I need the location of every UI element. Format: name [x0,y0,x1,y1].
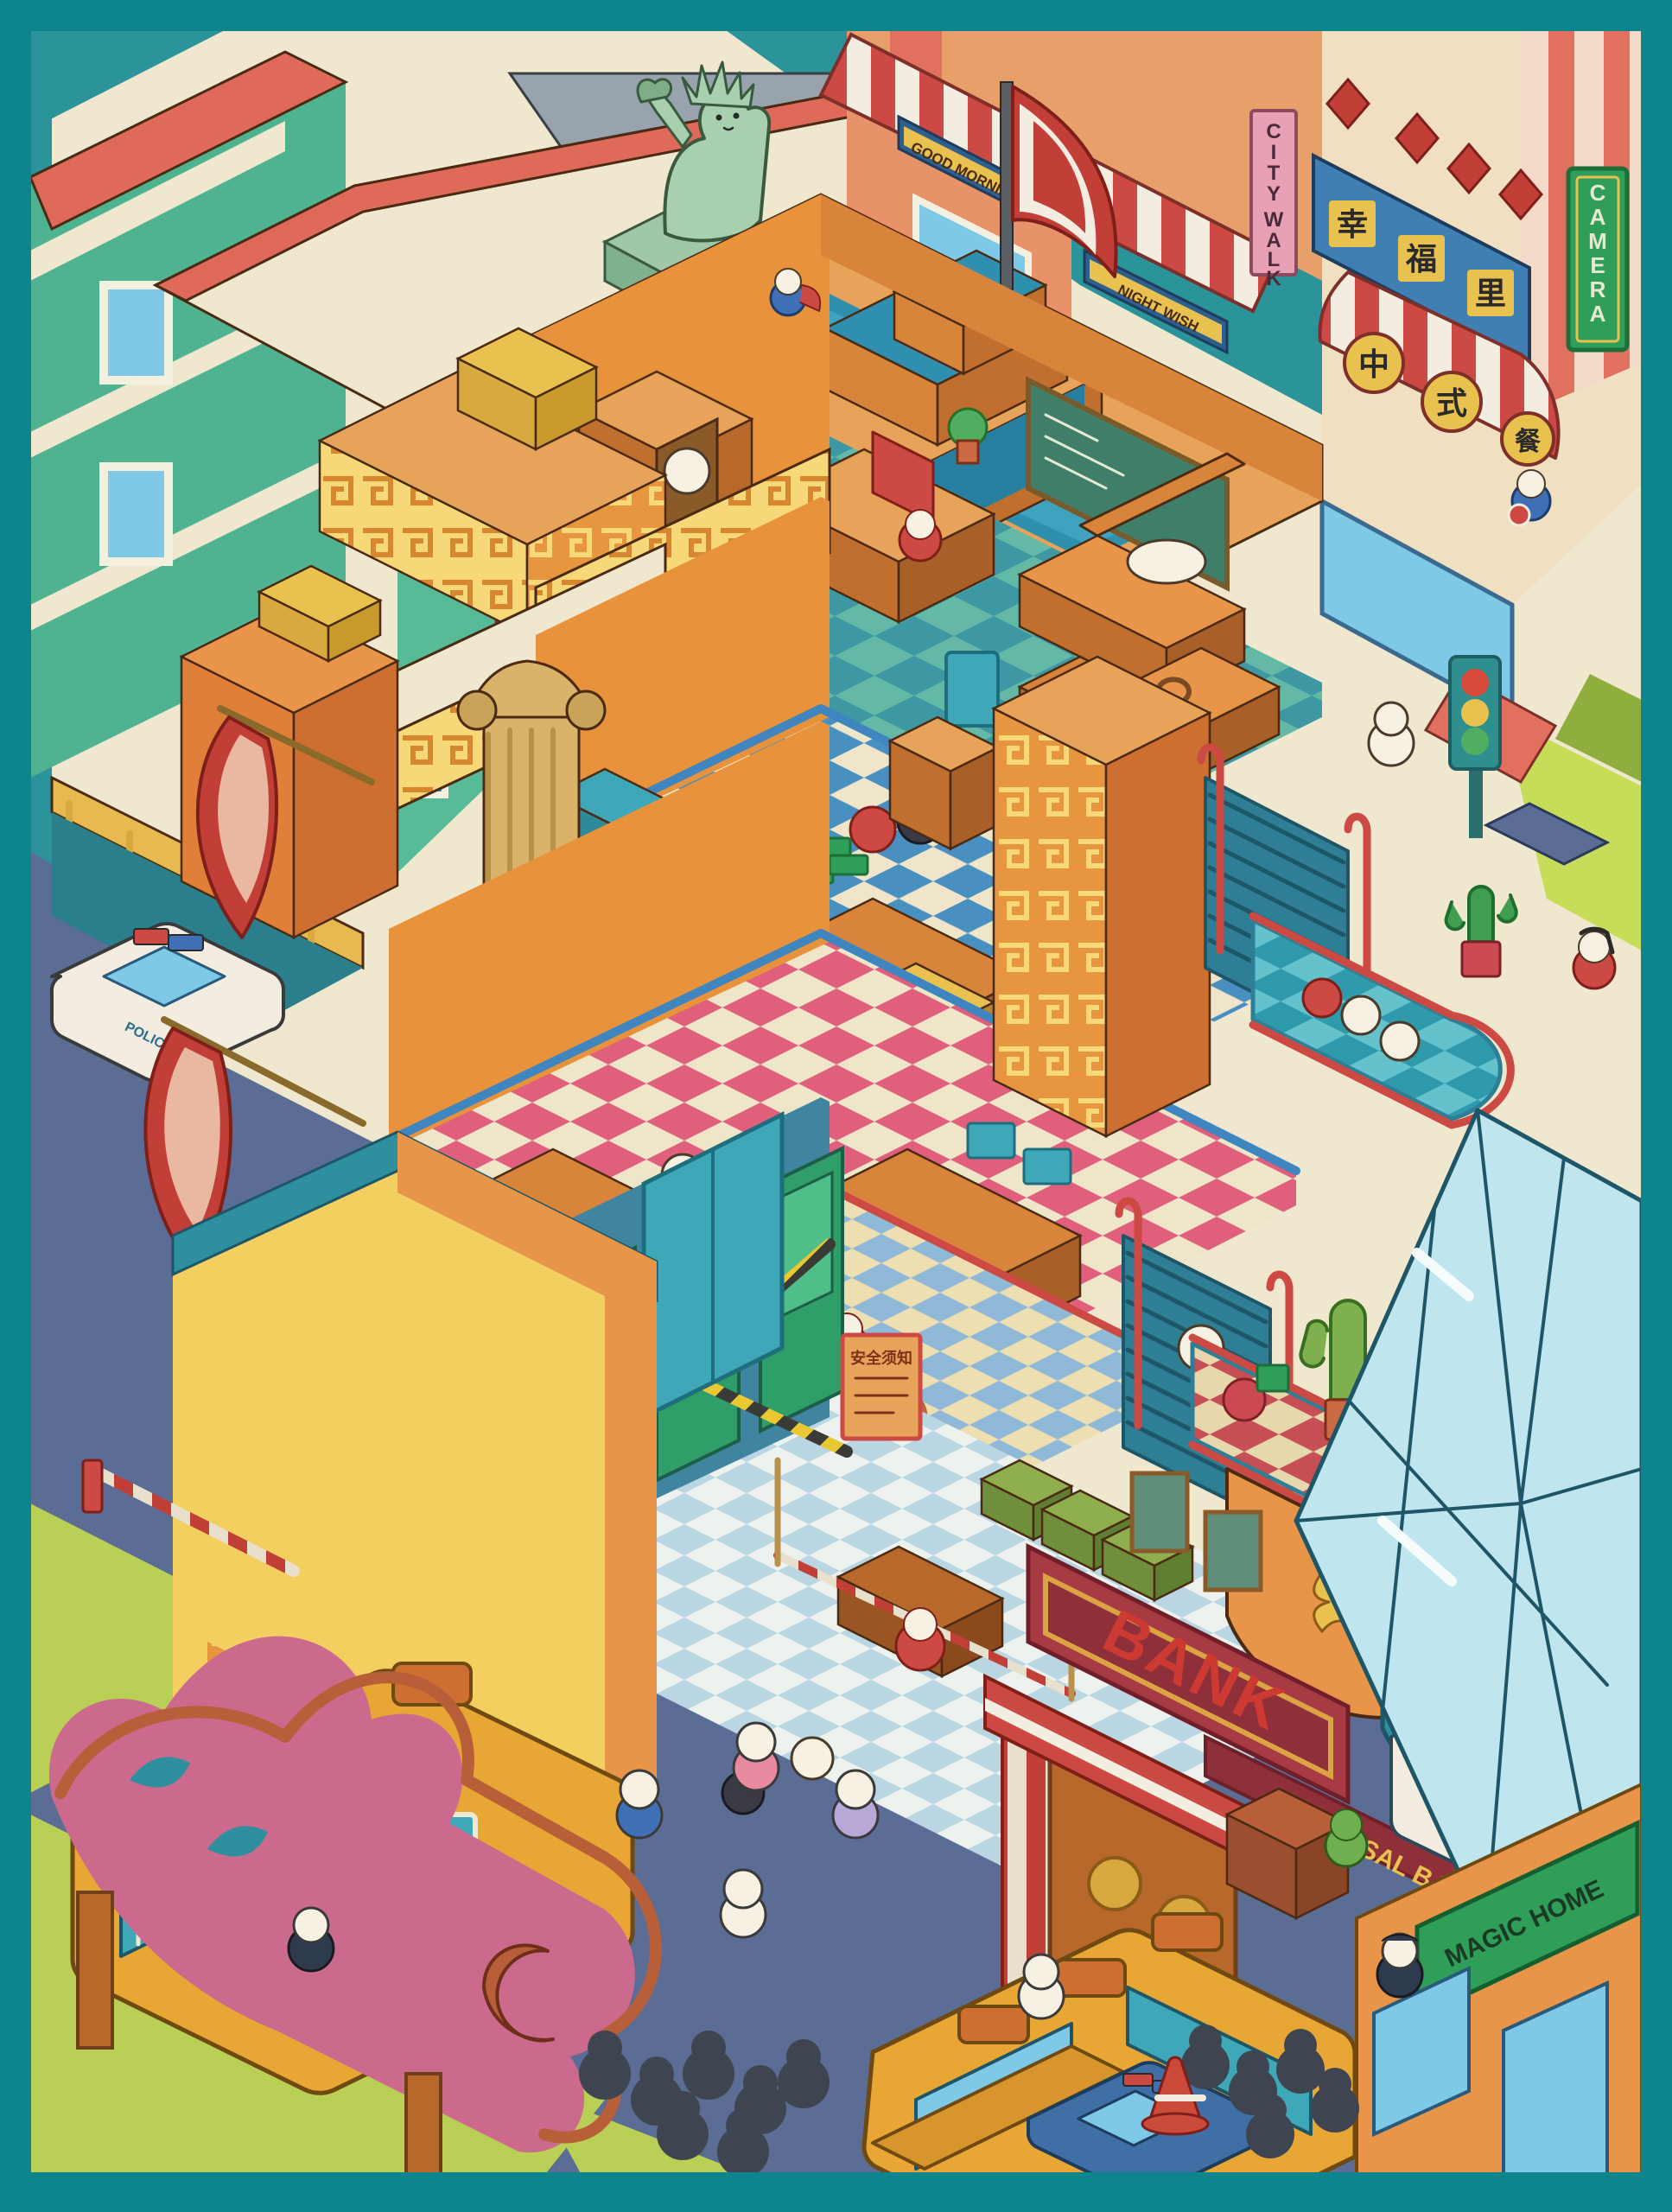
svg-text:Y: Y [1267,182,1281,206]
svg-text:福: 福 [1405,241,1437,276]
svg-text:T: T [1268,162,1281,185]
svg-text:式: 式 [1436,385,1467,421]
svg-text:I: I [1271,141,1277,164]
svg-text:C: C [1590,180,1606,206]
svg-text:M: M [1588,228,1607,254]
svg-text:A: A [1590,204,1606,230]
svg-text:幸: 幸 [1337,207,1368,242]
svg-text:K: K [1266,267,1281,290]
svg-text:C: C [1266,120,1281,143]
svg-text:W: W [1264,208,1284,232]
svg-text:E: E [1590,252,1605,278]
svg-text:A: A [1590,301,1606,327]
svg-text:R: R [1590,276,1606,302]
svg-text:中: 中 [1358,346,1389,382]
svg-text:里: 里 [1475,276,1506,311]
svg-text:安全须知: 安全须知 [850,1349,912,1367]
svg-text:餐: 餐 [1515,428,1542,456]
